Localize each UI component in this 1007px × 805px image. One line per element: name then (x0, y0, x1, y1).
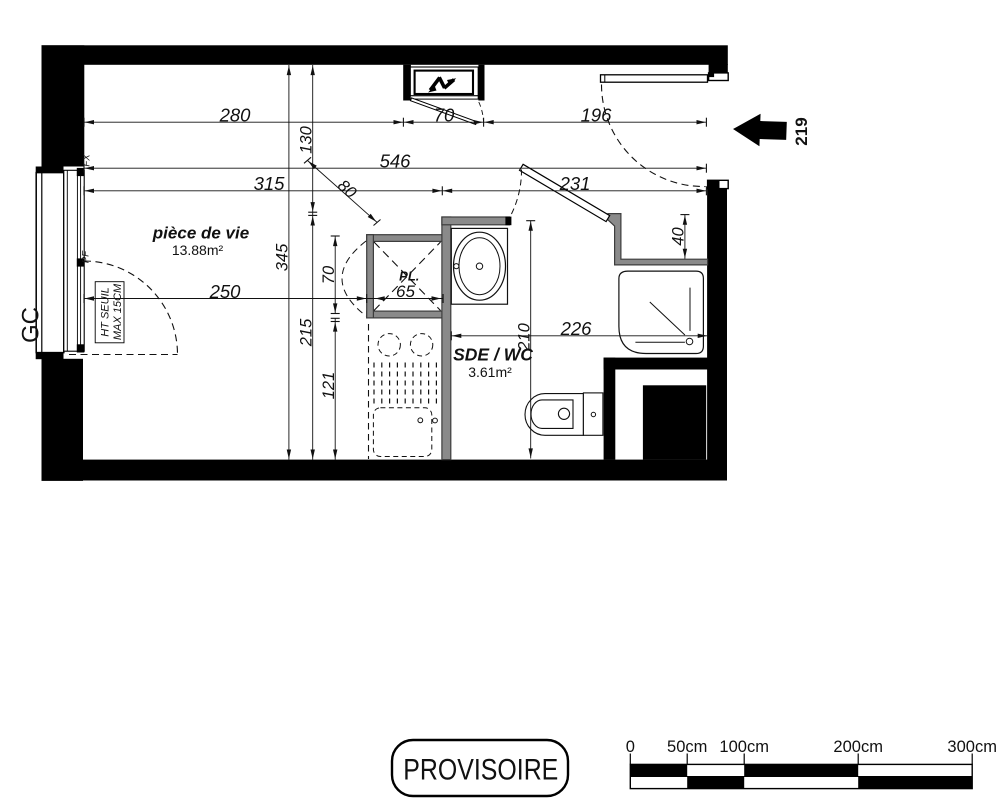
svg-text:219: 219 (792, 117, 811, 145)
svg-text:50cm: 50cm (667, 738, 707, 756)
svg-text:196: 196 (581, 105, 613, 126)
svg-text:231: 231 (559, 173, 591, 194)
svg-text:546: 546 (380, 151, 412, 172)
svg-text:MAX 15CM: MAX 15CM (112, 283, 124, 340)
svg-text:215: 215 (297, 318, 315, 347)
svg-text:GC: GC (18, 307, 45, 343)
svg-text:300cm: 300cm (947, 738, 997, 756)
svg-text:3.61m²: 3.61m² (468, 364, 512, 380)
svg-text:70: 70 (434, 105, 455, 126)
svg-text:65: 65 (396, 282, 415, 301)
svg-text:PROVISOIRE: PROVISOIRE (403, 754, 558, 787)
svg-text:HT SEUIL: HT SEUIL (99, 287, 111, 337)
svg-text:100cm: 100cm (719, 738, 769, 756)
svg-text:200cm: 200cm (833, 738, 883, 756)
svg-text:280: 280 (219, 105, 252, 126)
svg-text:70: 70 (320, 265, 338, 284)
svg-text:13.88m²: 13.88m² (172, 242, 224, 258)
svg-text:315: 315 (254, 173, 286, 194)
svg-text:130: 130 (297, 125, 315, 153)
svg-text:0: 0 (626, 738, 635, 756)
svg-text:210: 210 (515, 322, 533, 351)
svg-text:250: 250 (209, 281, 242, 302)
svg-text:40: 40 (670, 227, 688, 246)
svg-text:FX: FX (82, 154, 93, 167)
svg-text:226: 226 (560, 318, 593, 339)
svg-text:345: 345 (274, 243, 292, 271)
svg-text:pièce de vie: pièce de vie (152, 224, 249, 243)
svg-text:121: 121 (320, 372, 338, 400)
